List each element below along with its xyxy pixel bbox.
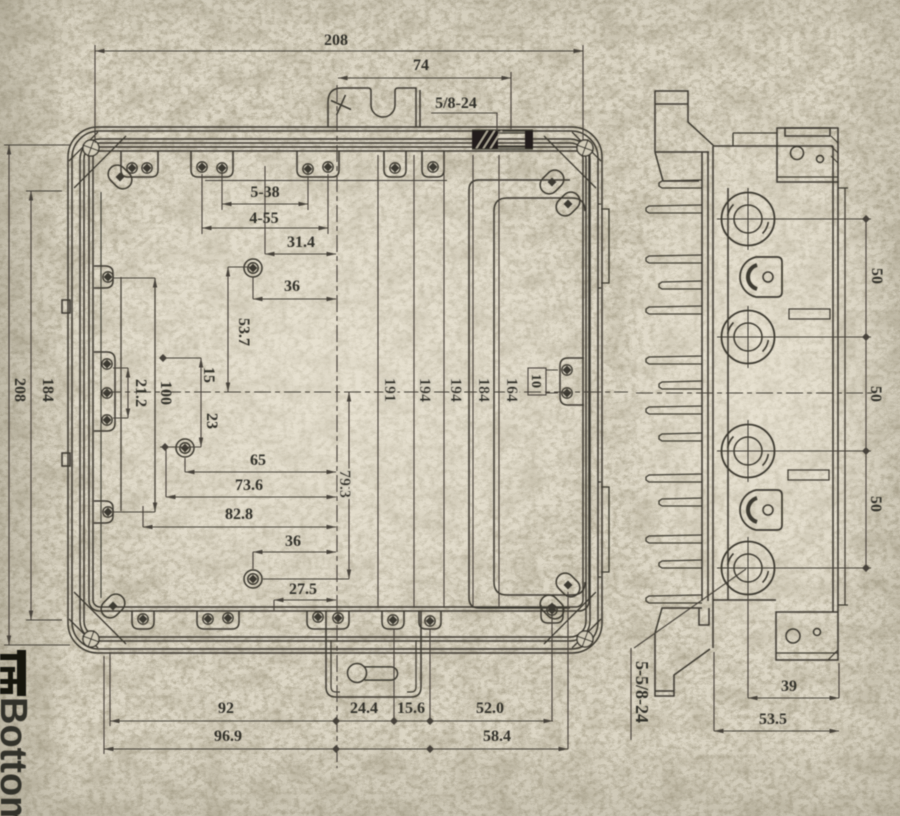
- svg-text:74: 74: [413, 57, 429, 74]
- svg-text:31.4: 31.4: [287, 234, 315, 251]
- svg-text:65: 65: [250, 452, 266, 469]
- svg-text:50: 50: [867, 496, 884, 512]
- svg-text:164: 164: [503, 378, 520, 402]
- svg-text:5/8-24: 5/8-24: [435, 95, 477, 112]
- svg-text:184: 184: [475, 378, 492, 402]
- svg-text:191: 191: [381, 378, 398, 402]
- svg-text:Bottom: Bottom: [0, 697, 34, 816]
- svg-text:53.5: 53.5: [759, 711, 787, 728]
- svg-text:58.4: 58.4: [483, 728, 511, 745]
- svg-text:100: 100: [157, 381, 174, 405]
- svg-text:79.3: 79.3: [336, 470, 353, 498]
- svg-text:5-5/8-24: 5-5/8-24: [632, 661, 652, 723]
- svg-text:208: 208: [11, 378, 28, 402]
- svg-text:208: 208: [324, 32, 348, 49]
- svg-text:50: 50: [867, 386, 884, 402]
- svg-text:194: 194: [447, 378, 464, 402]
- svg-text:82.8: 82.8: [225, 506, 253, 523]
- svg-text:50: 50: [868, 268, 885, 284]
- svg-text:36: 36: [284, 278, 300, 295]
- svg-text:194: 194: [416, 378, 433, 402]
- svg-text:5-38: 5-38: [250, 184, 279, 201]
- svg-text:15.6: 15.6: [397, 700, 425, 717]
- svg-text:73.6: 73.6: [235, 477, 263, 494]
- svg-text:23: 23: [203, 413, 220, 429]
- svg-text:27.5: 27.5: [289, 581, 317, 598]
- svg-text:15: 15: [200, 367, 217, 383]
- svg-text:96.9: 96.9: [214, 728, 242, 745]
- svg-text:92: 92: [218, 700, 234, 717]
- svg-text:10: 10: [528, 374, 543, 388]
- svg-text:52.0: 52.0: [476, 700, 504, 717]
- svg-text:4-55: 4-55: [249, 210, 278, 227]
- svg-text:21.2: 21.2: [132, 379, 149, 407]
- svg-text:184: 184: [39, 378, 56, 402]
- svg-text:39: 39: [781, 678, 797, 695]
- svg-text:36: 36: [285, 533, 301, 550]
- svg-text:53.7: 53.7: [235, 318, 252, 346]
- svg-text:24.4: 24.4: [350, 700, 378, 717]
